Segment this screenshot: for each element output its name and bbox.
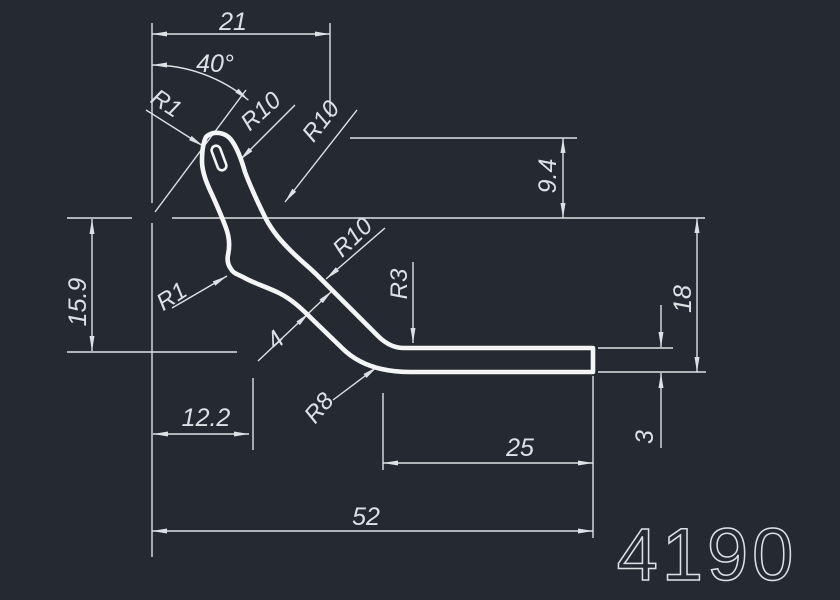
dimension-labels: 21 40° R1 R10 R10 9.4 15.9 R10 R1 4 R3 1…: [64, 8, 797, 596]
profile-hook-slot: [212, 146, 227, 171]
dim-15-9-label: 15.9: [64, 278, 92, 327]
dim-12-2-label: 12.2: [182, 404, 231, 432]
dim-25-label: 25: [505, 434, 534, 462]
technical-drawing: 21 40° R1 R10 R10 9.4 15.9 R10 R1 4 R3 1…: [0, 0, 840, 600]
angle-40-label: 40°: [196, 50, 234, 78]
dim-3-label: 3: [631, 430, 659, 444]
dim-9-4-label: 9.4: [534, 159, 562, 194]
radius-r1-low-label: R1: [152, 277, 192, 316]
dim-4-label: 4: [261, 325, 290, 355]
radius-r10-mid-label: R10: [328, 212, 379, 262]
dim-52-label: 52: [352, 503, 380, 531]
radius-r8-label: R8: [299, 387, 340, 428]
radius-r3-label: R3: [386, 268, 413, 299]
part-number: 4190: [617, 513, 798, 596]
cad-canvas: 21 40° R1 R10 R10 9.4 15.9 R10 R1 4 R3 1…: [0, 0, 840, 600]
dim-18-label: 18: [669, 285, 697, 313]
leader-lines: [146, 105, 413, 400]
radius-r10-b-label: R10: [297, 95, 346, 147]
dim-21-label: 21: [218, 8, 247, 36]
